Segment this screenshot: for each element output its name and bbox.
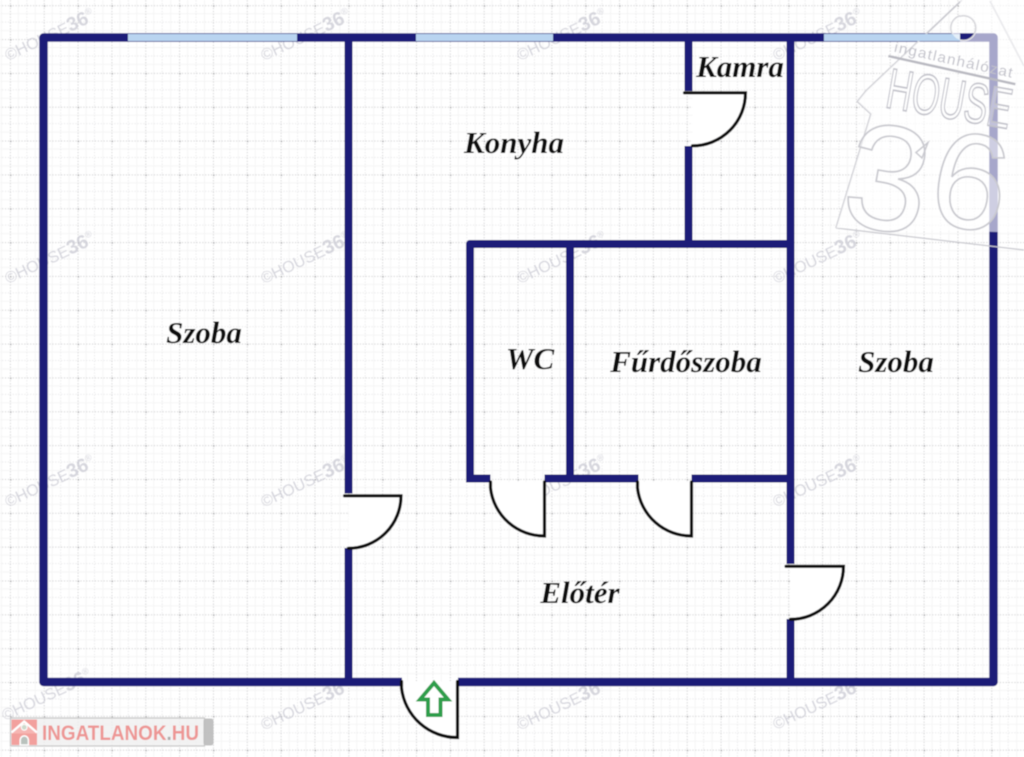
svg-text:Fűrdőszoba: Fűrdőszoba: [609, 344, 762, 379]
svg-text:Szoba: Szoba: [858, 344, 934, 379]
svg-text:INGATLANOK.HU: INGATLANOK.HU: [42, 721, 199, 745]
svg-text:Konyha: Konyha: [463, 125, 564, 160]
svg-text:Kamra: Kamra: [695, 49, 784, 84]
svg-text:Előtér: Előtér: [539, 575, 620, 610]
svg-text:WC: WC: [506, 341, 555, 376]
svg-text:Szoba: Szoba: [166, 315, 242, 350]
